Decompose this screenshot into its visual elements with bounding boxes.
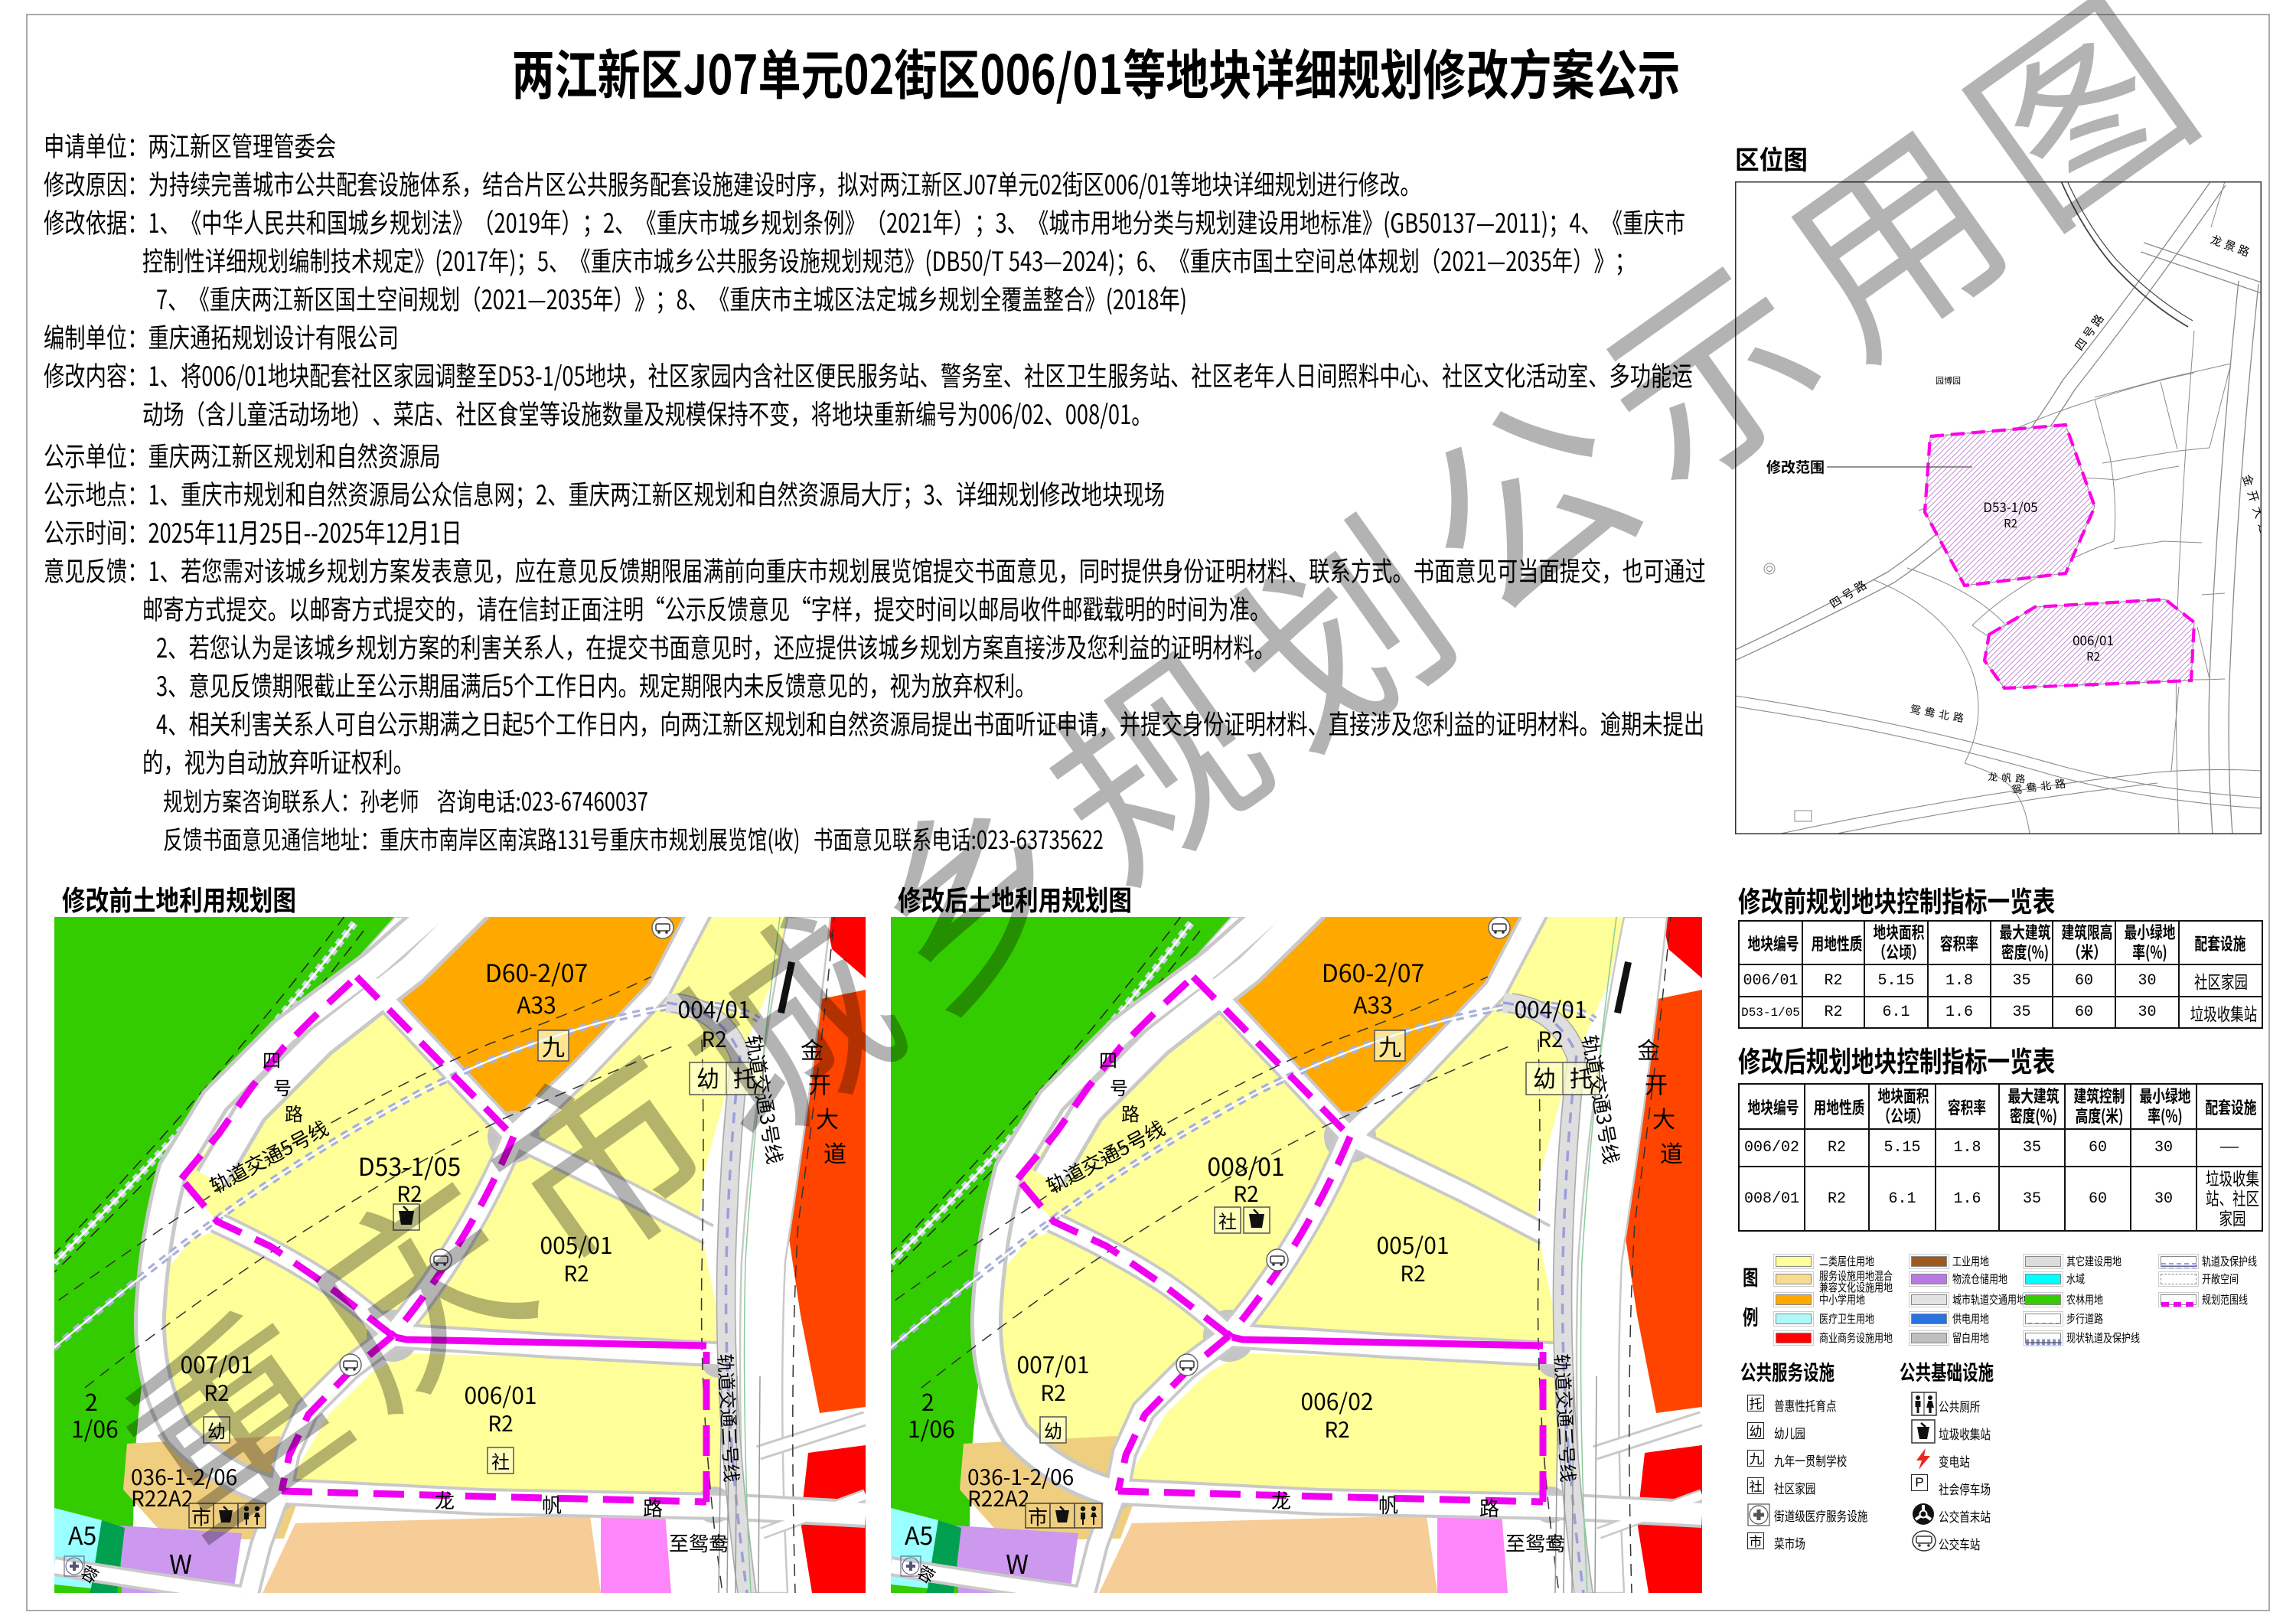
svg-text:重庆市城乡规划公示用图: 重庆市城乡规划公示用图 xyxy=(59,0,2260,1591)
